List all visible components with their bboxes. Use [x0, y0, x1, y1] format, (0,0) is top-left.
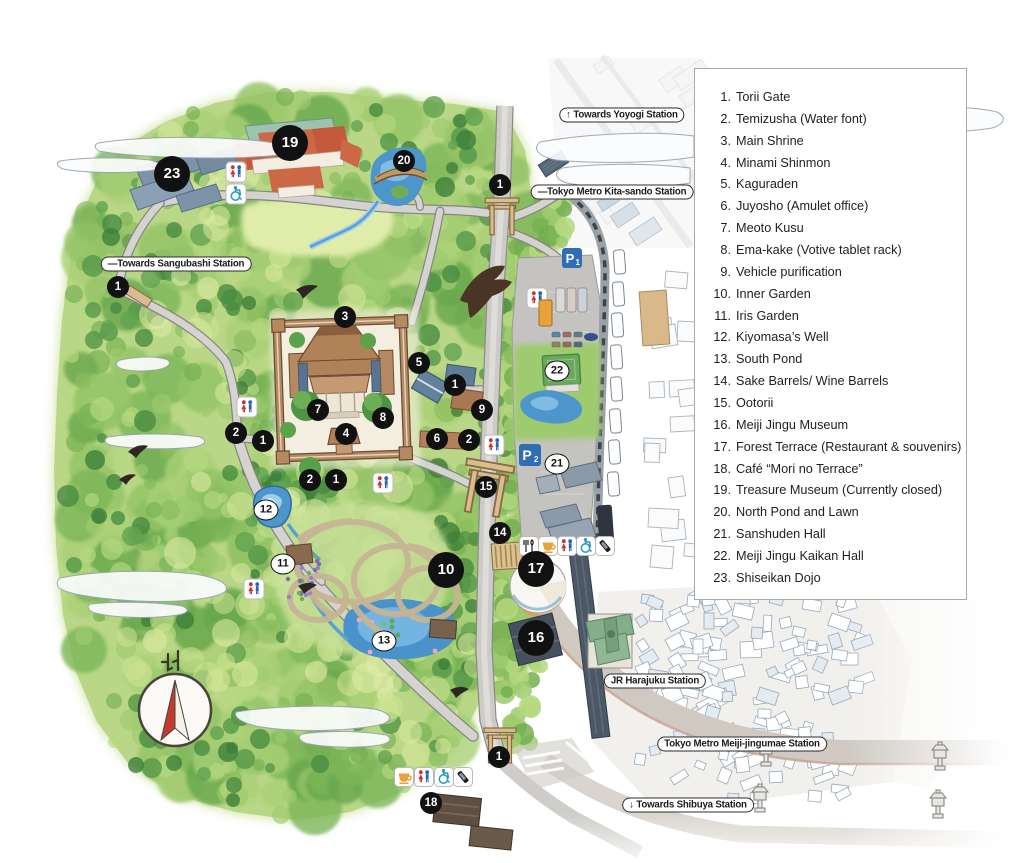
svg-text:P: P [522, 447, 531, 463]
svg-text:2: 2 [534, 455, 539, 464]
svg-text:1: 1 [576, 258, 581, 267]
svg-text:P: P [566, 251, 575, 266]
